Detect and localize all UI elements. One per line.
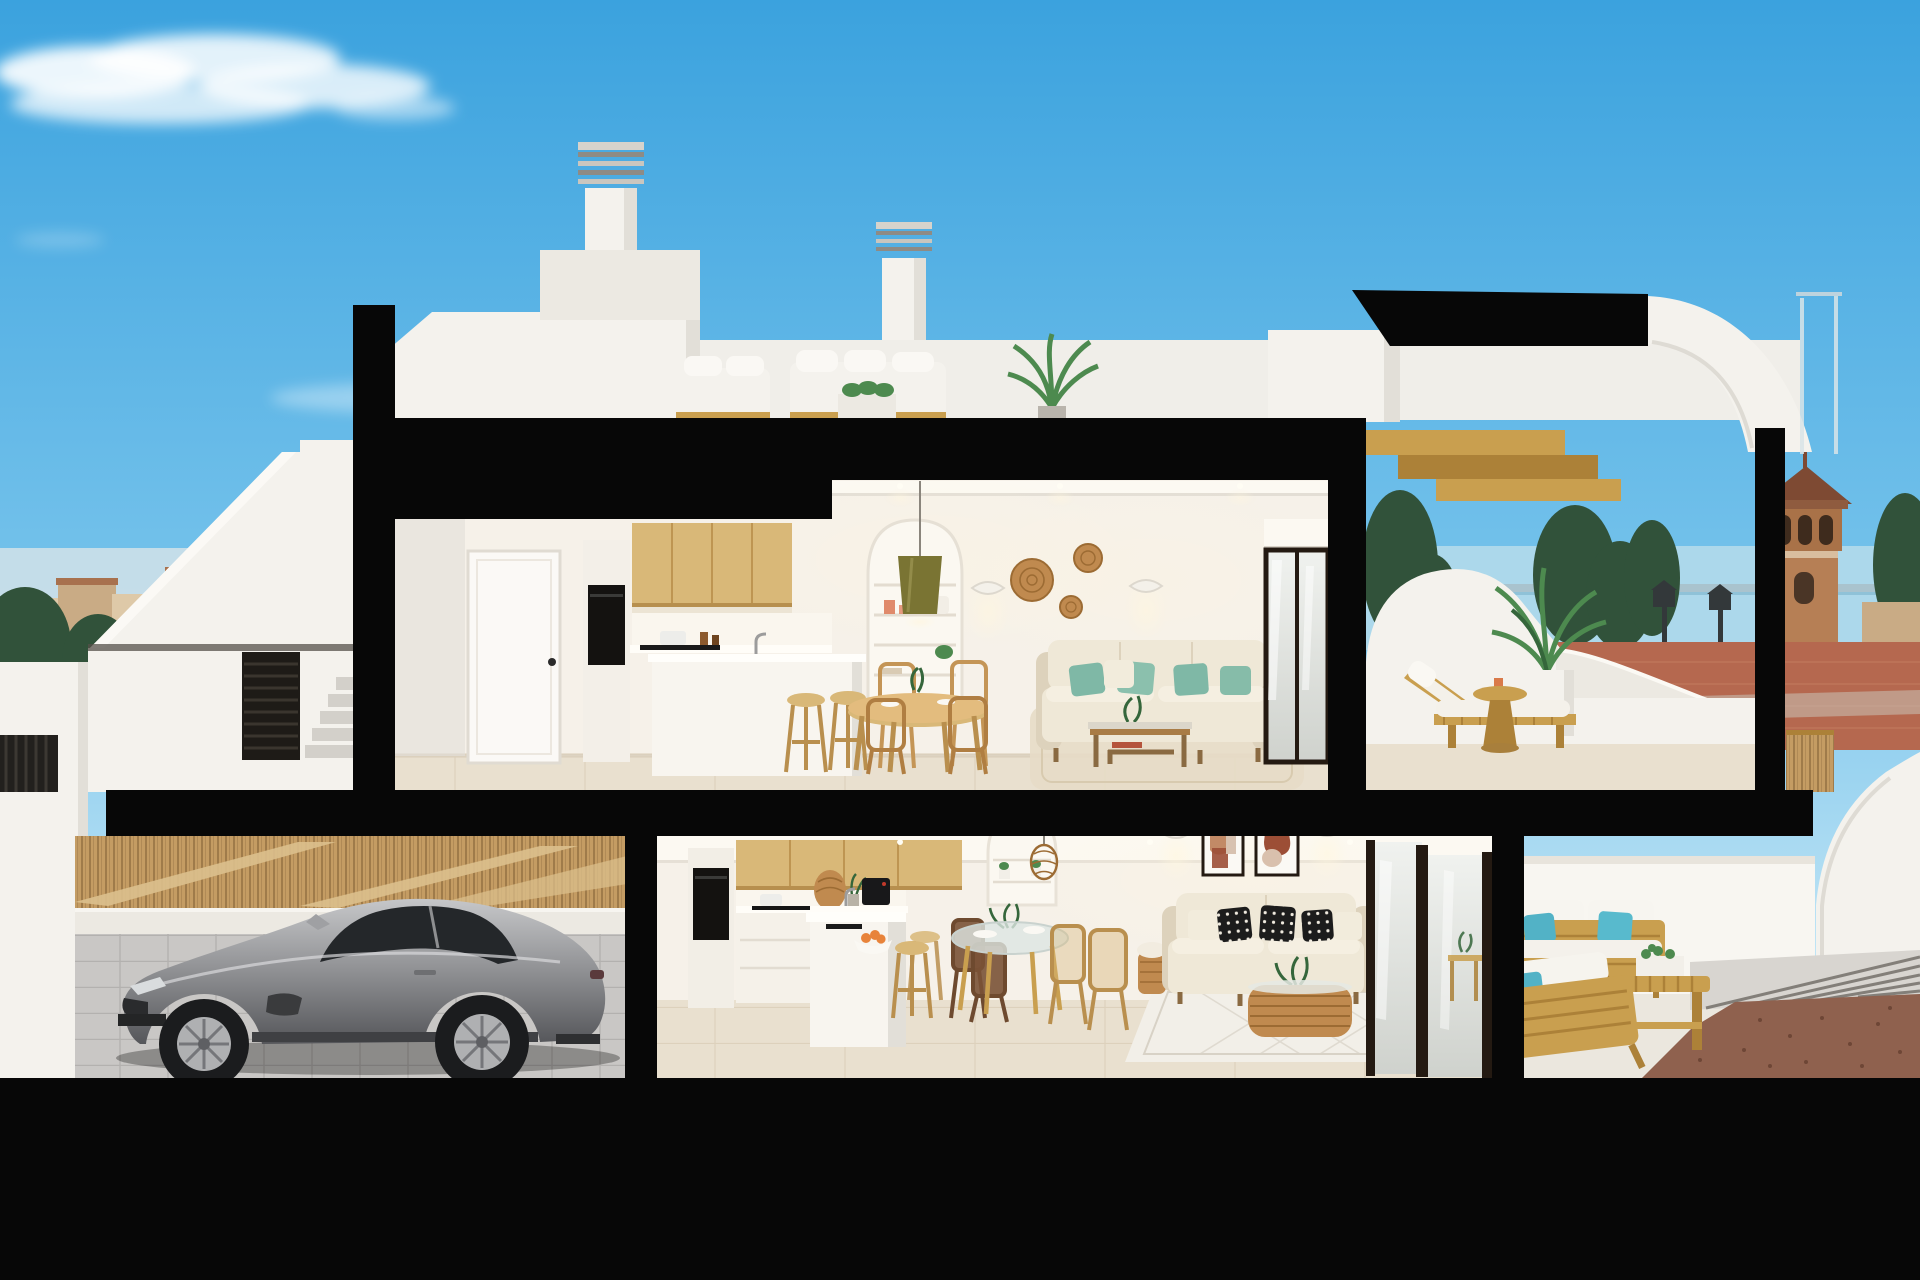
upper-interior-door [468,551,560,763]
cut-column-upper-left [353,305,395,797]
bw-pattern-pillows [1216,905,1334,943]
cut-mid-slab [106,790,1813,836]
turquoise-pillow [1523,912,1557,944]
left-boundary-wall [0,662,88,1080]
roof-wall-left [390,312,700,420]
wall-sconce-upper-right [1124,580,1168,640]
upper-counter [630,613,832,653]
terrace-floor [1366,744,1757,794]
spice-jar [700,632,708,645]
cooktop [640,645,720,650]
upper-glass-door [1264,519,1328,762]
chimney-2 [876,222,932,350]
cut-column-upper-mid [1328,418,1366,797]
side-vent [266,993,302,1015]
cut-column-upper-right [1755,428,1785,794]
entrance-gate [242,652,300,760]
garage [75,836,627,1089]
timber-fence [1786,730,1834,792]
lower-oven-column [688,848,734,1008]
front-splitter [118,1014,166,1026]
coral-vase [884,600,895,614]
turquoise-pillow-2 [1597,911,1633,944]
rear-diffuser [556,1034,600,1044]
cut-column-lower-right [1492,836,1524,1082]
cooking-pot [660,631,686,645]
glass-top [1248,980,1352,994]
island-sink [826,924,862,929]
books [1112,742,1142,748]
wall-top-shadow [88,644,362,651]
cut-ground-slab [0,1078,1920,1280]
taillight [590,970,604,979]
lower-floor-interior [657,800,1510,1080]
front-wheel [159,999,249,1089]
upper-corner-shade [395,519,465,756]
cooktop-lower [752,906,810,910]
pot-lower [760,894,782,906]
roof-volume-right [1268,330,1400,422]
rear-wheel [435,995,529,1089]
door-handle [414,970,436,975]
lower-wall-cabinets [736,840,962,890]
cream-pillow [1188,910,1218,940]
cut-roof-wedge [1352,290,1648,346]
cut-column-garage [625,836,657,1082]
coffee-machine [862,878,890,905]
upper-oven-column [583,540,630,762]
cutaway-illustration [0,0,1920,1280]
niche-plant [935,645,953,659]
roller-blind-box [1264,519,1328,549]
roof-planter-box [838,394,896,418]
lower-island [806,889,906,1047]
corner-slat-door [0,735,58,792]
cream-pillow [1104,660,1134,688]
upper-wall-cabinets [632,523,792,613]
tower-window [1794,572,1814,604]
wall-sconce-upper-left [966,582,1010,642]
render-canvas [0,0,1920,1280]
succulent-planter [1636,956,1684,976]
door-handle [548,658,556,666]
roof-parapet-mid [540,250,700,320]
roof-terrace-sofas [676,350,946,418]
